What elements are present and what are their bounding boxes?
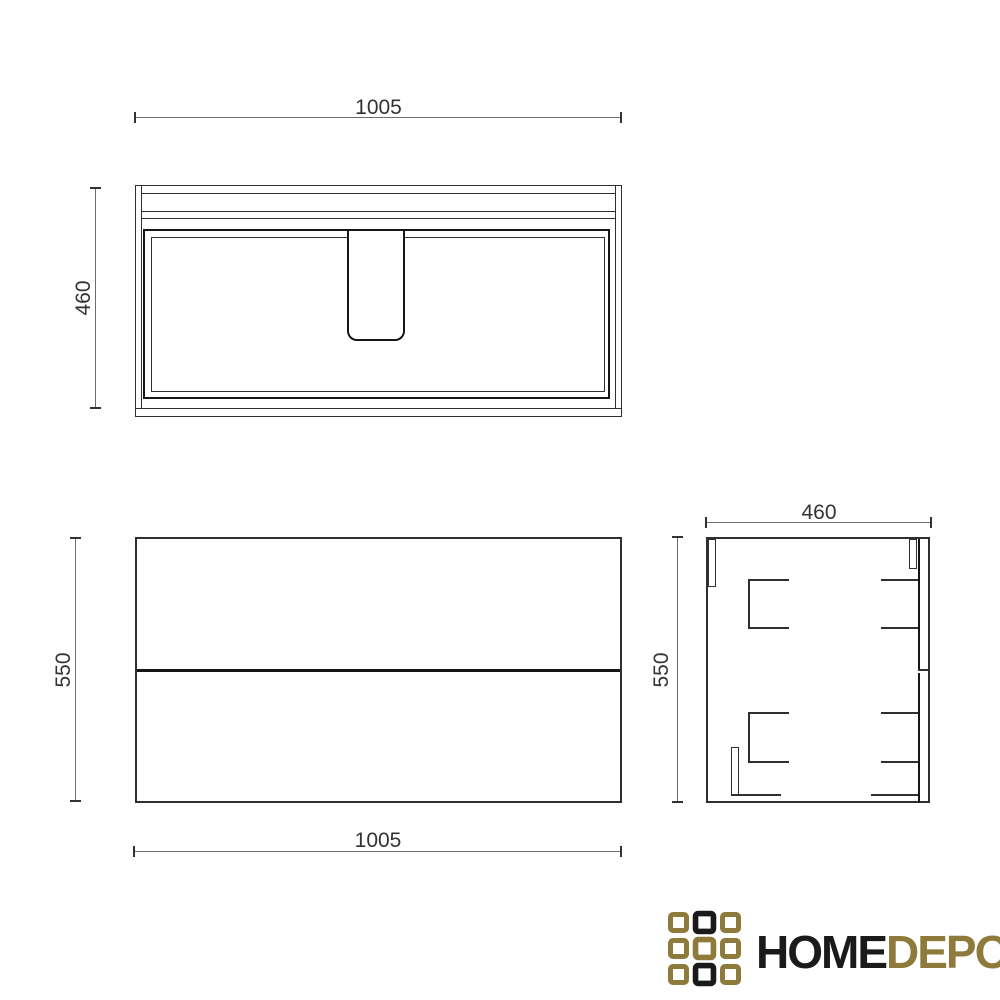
logo-text: HOMEDEPO <box>756 929 1000 975</box>
side-view-wall-rail-top-right <box>909 539 917 569</box>
dimension-label-top-width: 1005 <box>135 97 622 119</box>
top-view-back-edge-line-2 <box>142 211 615 212</box>
dimension-line <box>75 538 76 802</box>
side-view-drawer-runner-lower-right <box>881 712 918 763</box>
logo-word-depo: DEPO <box>886 926 1000 978</box>
logo-square-gold <box>720 964 741 985</box>
side-view-outline <box>706 537 930 803</box>
side-view-bottom-bracket <box>731 747 739 796</box>
dimension-tick <box>672 536 683 538</box>
logo-square-dark <box>693 911 717 935</box>
dimension-tick <box>90 187 101 189</box>
side-view-wall-rail-top-left <box>708 539 716 587</box>
side-view-drawer-runner-upper-left <box>748 579 789 629</box>
dimension-label-front-width: 1005 <box>134 830 622 852</box>
side-view-back-panel-line-upper <box>918 539 920 669</box>
logo-square-gold <box>668 912 689 933</box>
top-view-back-edge-line-3 <box>142 218 615 219</box>
logo-word-home: HOME <box>756 926 886 978</box>
dimension-tick <box>672 801 683 803</box>
top-view-front-edge-line <box>136 408 621 409</box>
top-view-back-edge-line-1 <box>142 193 615 194</box>
side-view-bottom-line-left <box>731 794 781 796</box>
dimension-label-side-height: 550 <box>651 640 673 700</box>
side-view-drawer-runner-lower-left <box>748 712 789 763</box>
dimension-line <box>677 537 678 803</box>
side-view-drawer-runner-upper-right <box>881 579 918 629</box>
front-view-drawer-divider <box>137 669 620 672</box>
top-view-faucet-cutout <box>347 231 405 341</box>
dimension-tick <box>90 407 101 409</box>
logo-grid <box>668 912 741 985</box>
logo-square-dark <box>693 963 717 987</box>
side-view-back-panel-step <box>918 669 929 671</box>
dimension-tick <box>70 537 81 539</box>
dimension-label-top-depth: 460 <box>73 268 95 328</box>
logo-square-gold <box>720 912 741 933</box>
side-view-bottom-line-right <box>871 794 918 796</box>
logo-square-gold <box>668 938 689 959</box>
dimension-line <box>95 188 96 409</box>
logo-square-gold <box>720 938 741 959</box>
logo-square-gold <box>668 964 689 985</box>
dimension-tick <box>70 800 81 802</box>
top-view-left-panel-line <box>141 186 142 409</box>
dimension-label-side-depth: 460 <box>706 502 932 524</box>
side-view-back-panel-line-lower <box>918 673 920 803</box>
dimension-label-front-height: 550 <box>53 640 75 700</box>
logo-square-gold <box>693 937 717 961</box>
technical-drawing-canvas: 1005 460 550 1005 <box>0 0 1000 1000</box>
top-view-right-panel-line <box>615 186 616 409</box>
